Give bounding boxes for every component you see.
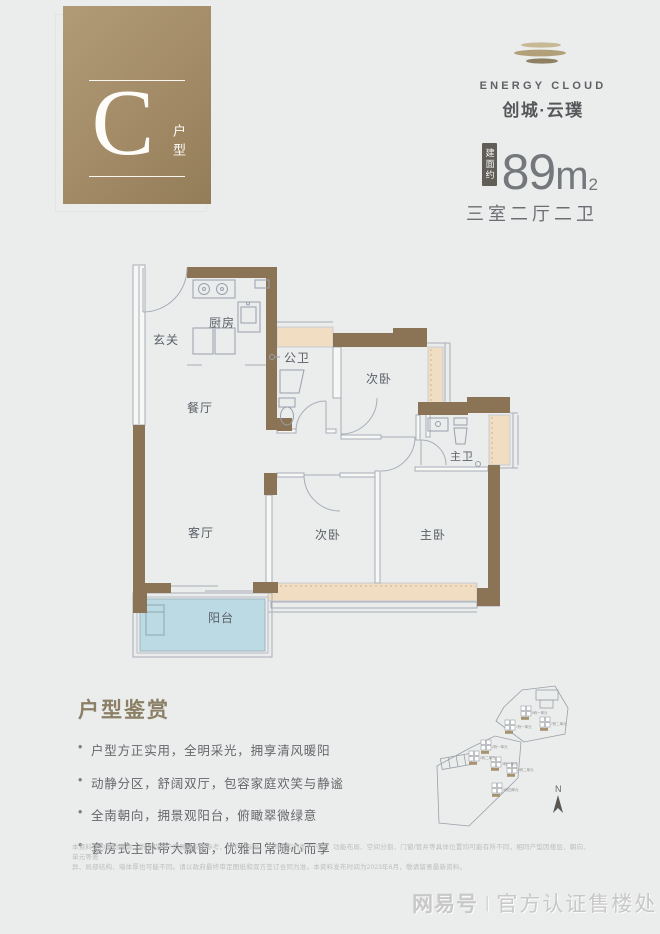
svg-text:2栋二单元: 2栋二单元 — [480, 755, 496, 760]
brand-name-cn: 创城·云璞 — [453, 96, 633, 121]
label-guest-bath: 公卫 — [284, 351, 310, 365]
label-kitchen: 厨房 — [209, 315, 235, 330]
watermark: 网易号 | 官方认证售楼处 — [412, 888, 657, 918]
brand-name-en: ENERGY CLOUD — [453, 80, 633, 92]
watermark-label: 官方认证售楼处 — [496, 888, 657, 918]
label-balcony: 阳台 — [208, 610, 234, 625]
label-bedroom2: 次卧 — [366, 372, 392, 386]
svg-text:N: N — [555, 784, 562, 794]
svg-text:3栋一单元: 3栋一单元 — [502, 761, 518, 766]
svg-text:3栋四单元: 3栋四单元 — [503, 787, 519, 792]
area-prefix-tag: 建面约 — [482, 143, 497, 186]
label-entry: 玄关 — [153, 332, 179, 347]
outline-lines — [133, 265, 518, 612]
svg-text:5栋一单元: 5栋一单元 — [532, 710, 548, 715]
label-dining: 餐厅 — [187, 400, 213, 415]
badge-divider-bottom — [89, 176, 185, 177]
unit-letter: C — [63, 76, 183, 170]
area-block: 建面约 89m2 三室二厅二卫 — [466, 143, 598, 226]
brand-logo: ENERGY CLOUD 创城·云璞 — [453, 40, 633, 121]
label-master-bath: 主卫 — [450, 450, 474, 463]
svg-text:7栋二单元: 7栋二单元 — [551, 721, 567, 726]
watermark-brand: 网易号 — [412, 888, 478, 918]
area-sup: 2 — [589, 176, 598, 193]
label-living: 客厅 — [188, 525, 214, 540]
unit-badge: C 户型 — [63, 6, 211, 204]
area-value: 89 — [502, 151, 556, 194]
site-buildings — [469, 706, 550, 797]
highlights-list: 户型方正实用，全明采光，拥享清风暖阳 动静分区，舒阔双厅，包容家庭欢笑与静谧 全… — [78, 740, 408, 857]
poster-canvas: C 户型 ENERGY CLOUD 创城·云璞 建面约 89m2 三室二厅二卫 — [0, 0, 660, 934]
label-master-bedroom: 主卧 — [420, 528, 446, 542]
watermark-divider: | — [485, 893, 489, 913]
highlight-item: 户型方正实用，全明采光，拥享清风暖阳 — [78, 740, 408, 759]
site-building-labels: 5栋一单元 7栋一单元 7栋二单元 2栋一单元 2栋二单元 3栋一单元 3栋二单… — [480, 710, 567, 792]
svg-text:3栋二单元: 3栋二单元 — [518, 767, 534, 772]
disclaimer-line1: 本资料仅为要约邀请，所涉及的户型展示仅供参考，非交付标准。不同户型的面积尺寸、功… — [72, 843, 594, 863]
disclaimer: 本资料仅为要约邀请，所涉及的户型展示仅供参考，非交付标准。不同户型的面积尺寸、功… — [72, 843, 594, 873]
site-parcels — [437, 686, 568, 826]
north-arrow-icon: N — [553, 784, 563, 813]
highlight-item: 全南朝向，拥景观阳台，俯瞰翠微绿意 — [78, 805, 408, 824]
balcony-area — [133, 593, 272, 657]
walls — [133, 267, 510, 613]
highlights-title: 户型鉴赏 — [78, 694, 408, 724]
label-bedroom3: 次卧 — [315, 528, 341, 542]
disclaimer-line2: 异、局部结构、墙体厚也可能不同。请以政府最终审定图纸和双方签订合同为准。本资料发… — [72, 863, 594, 873]
highlight-item: 动静分区，舒阔双厅，包容家庭欢笑与静谧 — [78, 773, 408, 792]
siteplan: 5栋一单元 7栋一单元 7栋二单元 2栋一单元 2栋二单元 3栋一单元 3栋二单… — [425, 676, 620, 843]
bay-windows — [268, 327, 510, 601]
room-layout-label: 三室二厅二卫 — [466, 200, 598, 226]
cloud-logo-icon — [508, 40, 578, 70]
area-unit: m — [555, 159, 588, 193]
svg-text:2栋一单元: 2栋一单元 — [492, 744, 508, 749]
svg-text:7栋一单元: 7栋一单元 — [516, 724, 532, 729]
unit-type-label: 户型 — [169, 124, 188, 162]
floorplan: 玄关 厨房 公卫 次卧 餐厅 主卫 客厅 次卧 主卧 阳台 — [100, 250, 530, 675]
